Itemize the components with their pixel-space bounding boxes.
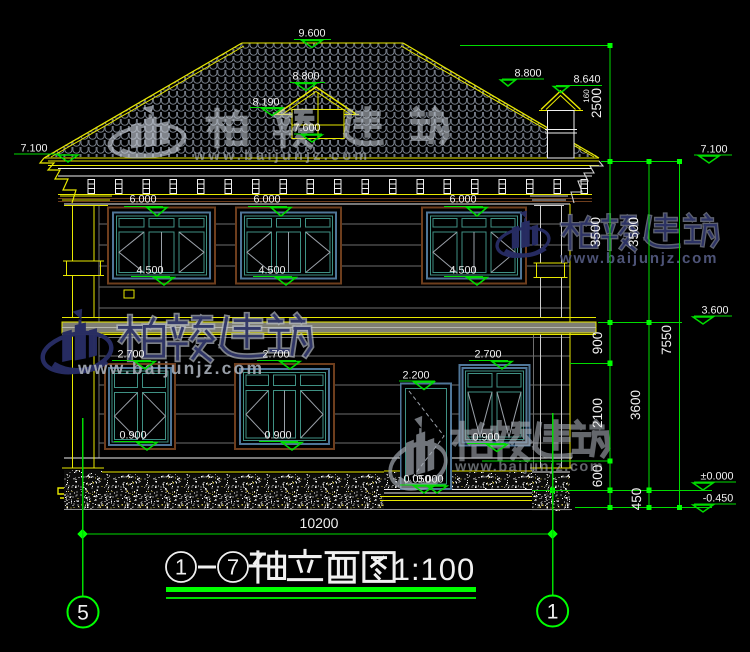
svg-text:6.000: 6.000 [253, 194, 280, 206]
svg-text:2500: 2500 [589, 88, 604, 118]
svg-text:4.500: 4.500 [449, 265, 476, 277]
svg-text:1: 1 [547, 601, 559, 624]
svg-text:7.600: 7.600 [293, 122, 320, 134]
svg-text:0.000: 0.000 [416, 474, 443, 486]
svg-text:3.600: 3.600 [701, 305, 728, 317]
svg-text:10200: 10200 [300, 515, 339, 531]
svg-text:8.800: 8.800 [514, 68, 541, 80]
svg-text:8.800: 8.800 [292, 71, 319, 83]
svg-text:160: 160 [582, 89, 591, 103]
svg-text:2.700: 2.700 [474, 349, 501, 361]
svg-text:www.baijunjz.com: www.baijunjz.com [77, 358, 264, 378]
svg-text:7.100: 7.100 [20, 143, 47, 155]
svg-text:1: 1 [175, 555, 187, 580]
svg-text:7.100: 7.100 [700, 144, 727, 156]
svg-text:3500: 3500 [626, 217, 641, 247]
svg-text:8.640: 8.640 [573, 74, 600, 86]
svg-text:±0.000: ±0.000 [701, 471, 734, 483]
svg-text:8.190: 8.190 [252, 97, 279, 109]
svg-text:www.baijunjz.com: www.baijunjz.com [193, 148, 370, 164]
svg-text:www.baijunjz.com: www.baijunjz.com [559, 250, 718, 267]
svg-text:2.700: 2.700 [117, 349, 144, 361]
svg-text:0.900: 0.900 [119, 430, 146, 442]
svg-text:4.500: 4.500 [136, 265, 163, 277]
svg-text:2100: 2100 [590, 398, 605, 428]
svg-text:6.000: 6.000 [449, 194, 476, 206]
svg-text:3500: 3500 [588, 217, 603, 247]
svg-text:2.700: 2.700 [262, 349, 289, 361]
svg-text:3600: 3600 [628, 390, 643, 420]
svg-text:7550: 7550 [659, 325, 674, 355]
svg-text:0.900: 0.900 [472, 432, 499, 444]
svg-text:5: 5 [77, 602, 89, 625]
svg-text:600: 600 [590, 465, 605, 488]
svg-text:-0.450: -0.450 [703, 493, 734, 505]
svg-text:900: 900 [590, 332, 605, 355]
svg-text:6.000: 6.000 [129, 194, 156, 206]
svg-text:0.900: 0.900 [264, 430, 291, 442]
svg-text:1:100: 1:100 [393, 552, 476, 587]
svg-text:2.200: 2.200 [402, 370, 429, 382]
svg-text:4.500: 4.500 [258, 265, 285, 277]
svg-text:9.600: 9.600 [298, 28, 325, 40]
svg-text:7: 7 [227, 555, 239, 580]
svg-text:450: 450 [629, 488, 644, 511]
